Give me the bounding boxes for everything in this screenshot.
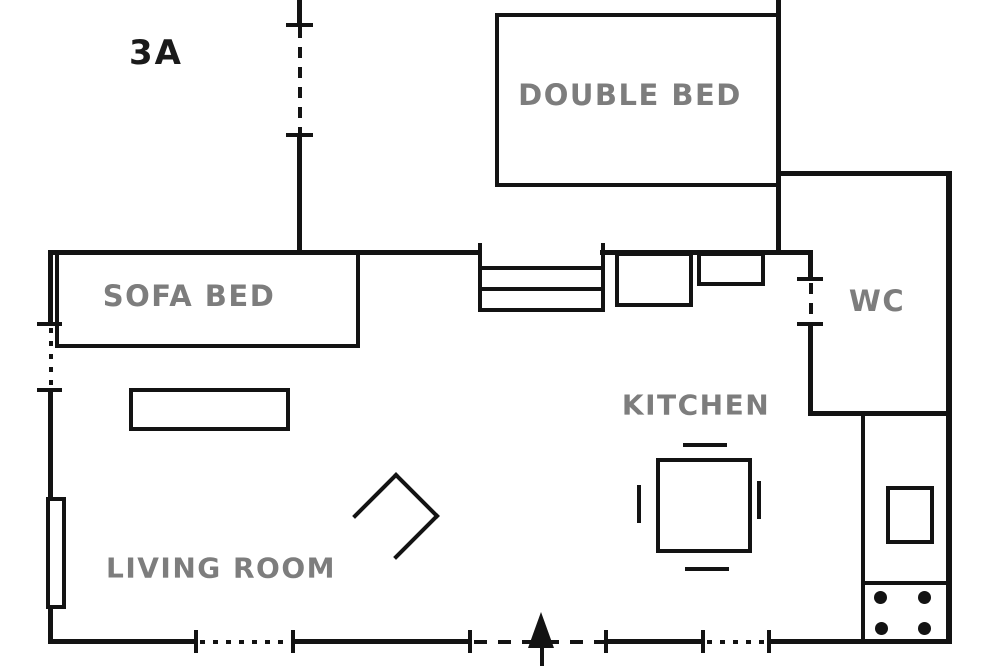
armchair-icon: [352, 472, 440, 560]
sink-counter-icon: [478, 243, 482, 312]
window-icon: [46, 497, 66, 609]
dining-table-icon: [656, 458, 752, 553]
chair-mark-icon: [685, 567, 729, 571]
room-label-double-bed: DOUBLE BED: [518, 78, 742, 112]
wall-bedroom-left-lower: [297, 137, 302, 254]
sink-counter-icon: [478, 266, 605, 270]
wall-tick: [468, 630, 472, 653]
sink-counter-icon: [478, 308, 605, 312]
bottom-wall-opening: [707, 640, 769, 644]
chair-mark-icon: [757, 481, 761, 519]
room-label-sofa-bed: SOFA BED: [103, 279, 276, 313]
wall-wc-left-lower: [808, 326, 813, 415]
kitchen-counter-icon: [697, 252, 765, 286]
wall-wc-bottom: [808, 411, 948, 416]
stove-burners-icon: [874, 591, 887, 604]
bedroom-door-opening: [298, 27, 302, 133]
entrance-arrow-stem: [540, 634, 544, 666]
kitchen-unit-wall: [861, 415, 865, 644]
room-label-wc: WC: [849, 284, 905, 318]
wall-bottom-2: [293, 639, 470, 644]
wall-wc-left-upper: [808, 253, 813, 279]
left-wall-opening: [49, 328, 53, 388]
wall-outer-right: [946, 171, 952, 644]
wall-tick: [701, 630, 705, 653]
wall-bottom-3: [606, 639, 703, 644]
stove-burners-icon: [918, 591, 931, 604]
coffee-table-icon: [129, 388, 290, 431]
room-label-living-room: LIVING ROOM: [106, 552, 336, 585]
bottom-wall-opening: [200, 640, 291, 644]
wc-door-opening: [809, 283, 813, 321]
floor-plan: 3A DOUBLE BED SOFA BED WC KITCHEN LIVING…: [0, 0, 1000, 666]
sink-counter-icon: [478, 287, 605, 291]
chair-mark-icon: [637, 485, 641, 523]
kitchen-unit-divider: [863, 581, 948, 585]
wall-wc-top: [776, 171, 952, 176]
unit-label: 3A: [129, 33, 183, 73]
wall-bottom-1: [48, 639, 197, 644]
stove-burners-icon: [875, 622, 888, 635]
sink-counter-icon: [601, 243, 605, 312]
wall-tick: [797, 277, 823, 281]
room-label-kitchen: KITCHEN: [622, 389, 770, 422]
wall-tick: [194, 630, 198, 653]
kitchen-counter-icon: [615, 252, 693, 307]
stove-burners-icon: [918, 622, 931, 635]
fridge-icon: [886, 486, 934, 544]
chair-mark-icon: [683, 443, 727, 447]
wall-outer-left-upper: [48, 250, 53, 326]
